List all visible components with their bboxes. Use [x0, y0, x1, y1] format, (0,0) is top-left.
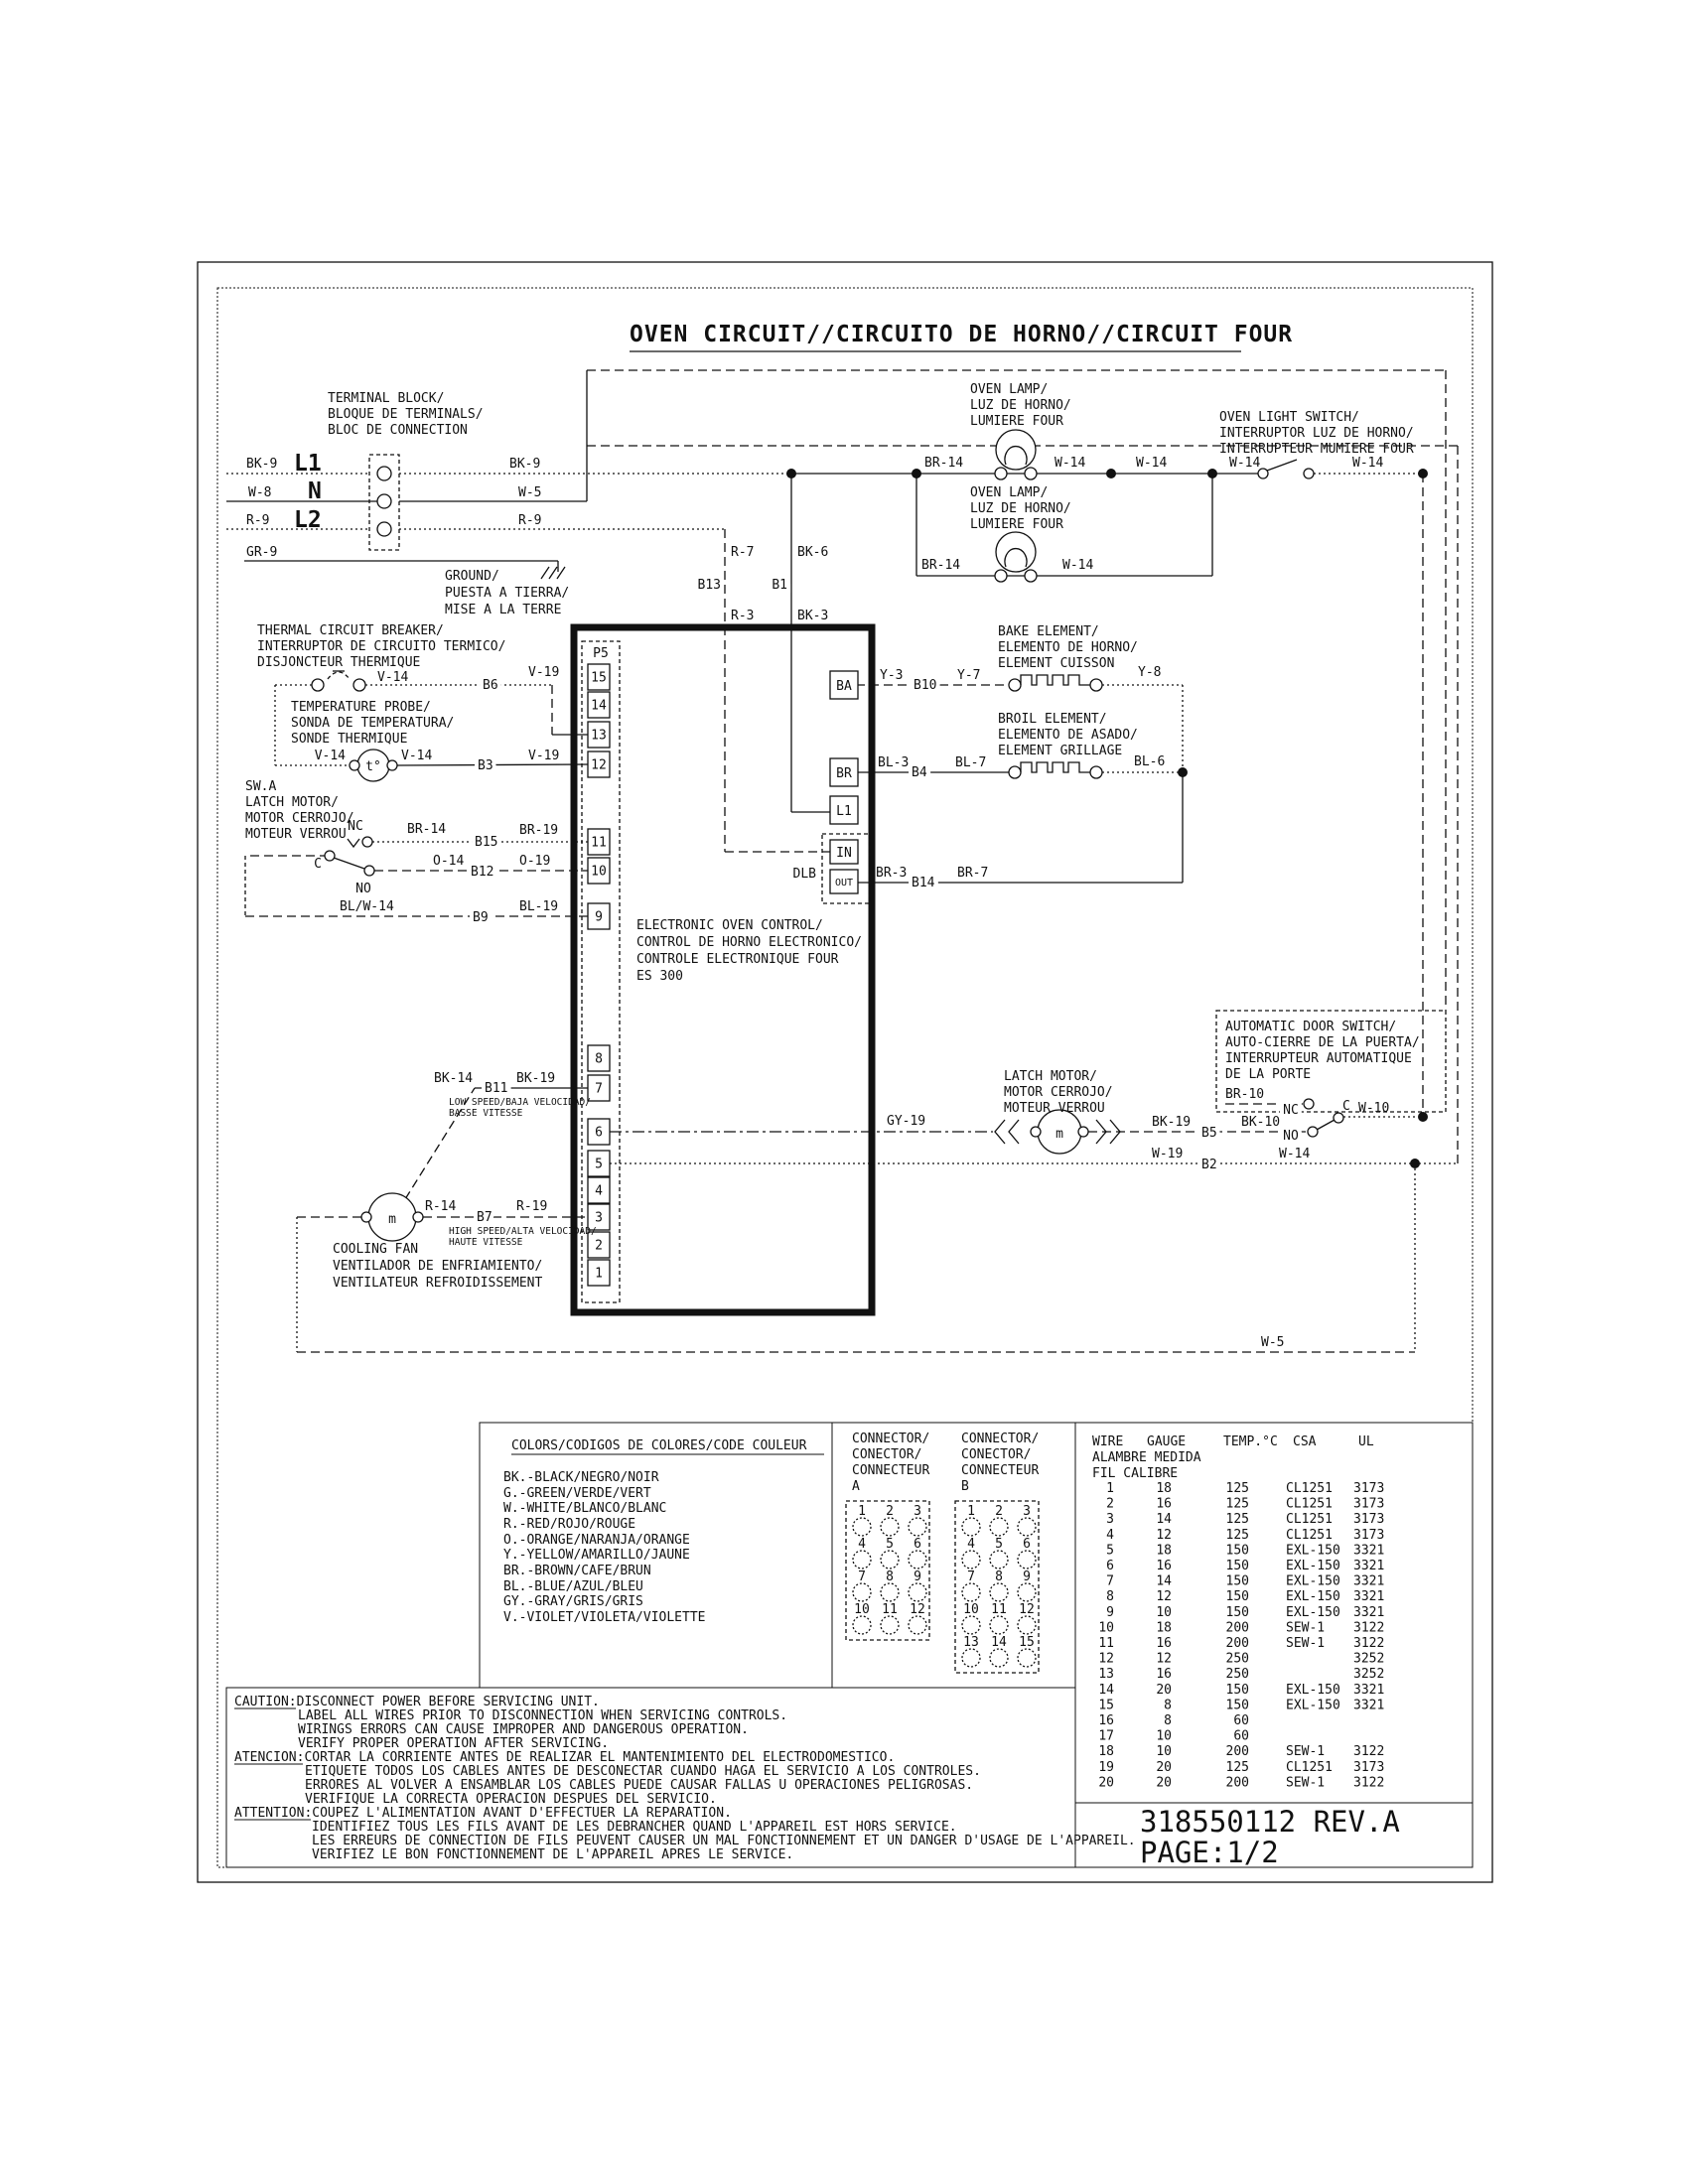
- svg-text:ES 300: ES 300: [636, 969, 683, 984]
- terminal-block-labels: TERMINAL BLOCK/ BLOQUE DE TERMINALS/ BLO…: [246, 391, 541, 560]
- svg-text:IDENTIFIEZ TOUS LES FILS AVANT: IDENTIFIEZ TOUS LES FILS AVANT DE LES DE…: [312, 1820, 957, 1835]
- svg-text:3122: 3122: [1353, 1775, 1384, 1790]
- svg-text:OVEN LAMP/: OVEN LAMP/: [970, 382, 1048, 397]
- svg-text:THERMAL CIRCUIT BREAKER/: THERMAL CIRCUIT BREAKER/: [257, 623, 444, 638]
- svg-text:B9: B9: [473, 910, 489, 925]
- svg-text:CONNECTOR/: CONNECTOR/: [961, 1432, 1039, 1446]
- svg-text:BL/W-14: BL/W-14: [340, 899, 394, 914]
- svg-text:W-10: W-10: [1358, 1101, 1389, 1116]
- svg-text:150: 150: [1226, 1605, 1249, 1620]
- svg-text:B13: B13: [698, 578, 721, 593]
- svg-text:BL-7: BL-7: [955, 755, 986, 770]
- svg-text:AUTO-CIERRE DE LA PUERTA/: AUTO-CIERRE DE LA PUERTA/: [1225, 1035, 1420, 1050]
- svg-text:OVEN LIGHT SWITCH/: OVEN LIGHT SWITCH/: [1219, 410, 1359, 425]
- svg-text:12: 12: [591, 758, 607, 773]
- svg-text:GY.-GRAY/GRIS/GRIS: GY.-GRAY/GRIS/GRIS: [503, 1594, 643, 1609]
- svg-text:5: 5: [886, 1537, 894, 1552]
- svg-text:LATCH MOTOR/: LATCH MOTOR/: [245, 795, 339, 810]
- svg-text:150: 150: [1226, 1683, 1249, 1698]
- svg-text:BK-19: BK-19: [1152, 1115, 1191, 1130]
- svg-text:10: 10: [1098, 1620, 1114, 1635]
- svg-text:R-14: R-14: [425, 1199, 456, 1214]
- svg-text:150: 150: [1226, 1698, 1249, 1712]
- svg-text:17: 17: [1098, 1729, 1114, 1744]
- svg-text:B15: B15: [475, 835, 497, 850]
- svg-text:CL1251: CL1251: [1286, 1512, 1333, 1527]
- svg-text:LATCH MOTOR/: LATCH MOTOR/: [1004, 1069, 1097, 1084]
- svg-text:O-19: O-19: [519, 854, 550, 869]
- svg-text:1: 1: [858, 1504, 866, 1519]
- control-relay-terminals: BA BR L1 IN OUT DLB: [793, 671, 870, 903]
- svg-text:MOTOR CERROJO/: MOTOR CERROJO/: [245, 811, 354, 826]
- caution-box: CAUTION:DISCONNECT POWER BEFORE SERVICIN…: [226, 1688, 1136, 1867]
- svg-text:BR-14: BR-14: [921, 558, 960, 573]
- svg-text:OVEN LAMP/: OVEN LAMP/: [970, 485, 1048, 500]
- door-switch-symbol: [1304, 1099, 1343, 1137]
- svg-text:3: 3: [1106, 1512, 1114, 1527]
- svg-text:6: 6: [914, 1537, 921, 1552]
- wire-gauge-table: WIRE GAUGE TEMP.°C CSA UL ALAMBRE MEDIDA…: [1092, 1434, 1384, 1790]
- svg-text:2: 2: [995, 1504, 1003, 1519]
- svg-text:BL-6: BL-6: [1134, 754, 1165, 769]
- svg-text:V-19: V-19: [528, 749, 559, 763]
- svg-text:125: 125: [1226, 1481, 1249, 1496]
- svg-text:m: m: [1055, 1127, 1063, 1142]
- thermal-breaker-symbol: [312, 671, 365, 691]
- svg-text:B1: B1: [772, 578, 787, 593]
- svg-text:V-14: V-14: [377, 670, 408, 685]
- svg-text:MOTEUR VERROU: MOTEUR VERROU: [1004, 1101, 1105, 1116]
- svg-text:VERIFY PROPER OPERATION AFTER: VERIFY PROPER OPERATION AFTER SERVICING.: [298, 1736, 609, 1751]
- svg-text:L1: L1: [836, 804, 852, 819]
- dlb-label: DLB: [793, 867, 817, 882]
- svg-text:LES ERREURS DE CONNECTION DE F: LES ERREURS DE CONNECTION DE FILS PEUVEN…: [312, 1834, 1136, 1848]
- svg-text:3122: 3122: [1353, 1636, 1384, 1651]
- svg-text:DE LA PORTE: DE LA PORTE: [1225, 1067, 1311, 1082]
- svg-text:1: 1: [967, 1504, 975, 1519]
- svg-text:BR-19: BR-19: [519, 823, 558, 838]
- svg-text:9: 9: [1106, 1605, 1114, 1620]
- svg-text:7: 7: [967, 1570, 975, 1584]
- svg-text:Y-7: Y-7: [957, 668, 980, 683]
- svg-text:BK-9: BK-9: [509, 457, 540, 472]
- svg-text:19: 19: [1098, 1760, 1114, 1775]
- svg-text:3252: 3252: [1353, 1667, 1384, 1682]
- svg-text:R-19: R-19: [516, 1199, 547, 1214]
- svg-text:8: 8: [1164, 1698, 1172, 1712]
- svg-text:WIRE: WIRE: [1092, 1434, 1123, 1449]
- svg-text:VERIFIEZ LE BON FONCTIONNEMENT: VERIFIEZ LE BON FONCTIONNEMENT DE L'APPA…: [312, 1847, 793, 1862]
- breaker-labels: THERMAL CIRCUIT BREAKER/ INTERRUPTOR DE …: [257, 623, 559, 693]
- svg-text:BAKE ELEMENT/: BAKE ELEMENT/: [998, 624, 1099, 639]
- svg-text:SW.A: SW.A: [245, 779, 276, 794]
- swa-labels: SW.A LATCH MOTOR/ MOTOR CERROJO/ MOTEUR …: [245, 779, 558, 925]
- svg-text:20: 20: [1098, 1775, 1114, 1790]
- svg-text:BLOQUE DE TERMINALS/: BLOQUE DE TERMINALS/: [328, 407, 484, 422]
- l1-terminal: L1: [294, 451, 322, 477]
- svg-text:3: 3: [914, 1504, 921, 1519]
- svg-text:10: 10: [854, 1602, 870, 1617]
- svg-text:V-19: V-19: [528, 665, 559, 680]
- svg-text:ATENCION:CORTAR LA CORRIENTE A: ATENCION:CORTAR LA CORRIENTE ANTES DE RE…: [234, 1750, 895, 1765]
- svg-text:TEMP.°C: TEMP.°C: [1223, 1434, 1278, 1449]
- svg-text:ELECTRONIC OVEN CONTROL/: ELECTRONIC OVEN CONTROL/: [636, 918, 823, 933]
- svg-text:NC: NC: [348, 819, 363, 834]
- fan-labels: COOLING FAN VENTILADOR DE ENFRIAMIENTO/ …: [333, 1071, 597, 1291]
- svg-text:HIGH SPEED/ALTA VELOCIDAD/: HIGH SPEED/ALTA VELOCIDAD/: [449, 1226, 597, 1237]
- svg-text:SEW-1: SEW-1: [1286, 1620, 1325, 1635]
- oven-light-switch-symbol: [1258, 469, 1314, 478]
- svg-text:CL1251: CL1251: [1286, 1528, 1333, 1543]
- svg-text:CONNECTEUR: CONNECTEUR: [961, 1463, 1039, 1478]
- svg-text:W-5: W-5: [518, 485, 541, 500]
- svg-text:60: 60: [1233, 1713, 1249, 1728]
- svg-text:V-14: V-14: [315, 749, 346, 763]
- svg-text:3321: 3321: [1353, 1698, 1384, 1712]
- svg-text:B6: B6: [483, 678, 498, 693]
- svg-text:W-14: W-14: [1055, 456, 1085, 471]
- svg-text:NO: NO: [1283, 1129, 1299, 1144]
- svg-text:BL.-BLUE/AZUL/BLEU: BL.-BLUE/AZUL/BLEU: [503, 1579, 643, 1594]
- svg-text:8: 8: [995, 1570, 1003, 1584]
- svg-text:GAUGE: GAUGE: [1147, 1434, 1186, 1449]
- svg-text:VERIFIQUE LA CORRECTA OPERACIO: VERIFIQUE LA CORRECTA OPERACION DESPUES …: [305, 1792, 717, 1807]
- svg-text:125: 125: [1226, 1497, 1249, 1512]
- svg-text:LUMIERE FOUR: LUMIERE FOUR: [970, 414, 1063, 429]
- svg-text:2: 2: [886, 1504, 894, 1519]
- svg-text:V-14: V-14: [401, 749, 432, 763]
- svg-text:SEW-1: SEW-1: [1286, 1775, 1325, 1790]
- svg-text:EXL-150: EXL-150: [1286, 1698, 1340, 1712]
- svg-text:EXL-150: EXL-150: [1286, 1543, 1340, 1558]
- svg-text:ELEMENT GRILLAGE: ELEMENT GRILLAGE: [998, 744, 1122, 758]
- svg-text:C: C: [314, 857, 322, 872]
- svg-text:11: 11: [591, 836, 607, 851]
- w5-bottom-label: W-5: [1261, 1335, 1284, 1350]
- svg-text:9: 9: [1023, 1570, 1031, 1584]
- svg-text:W-14: W-14: [1062, 558, 1093, 573]
- svg-text:MISE A LA TERRE: MISE A LA TERRE: [445, 603, 561, 617]
- svg-text:125: 125: [1226, 1512, 1249, 1527]
- svg-text:Y-8: Y-8: [1138, 665, 1161, 680]
- svg-text:150: 150: [1226, 1543, 1249, 1558]
- svg-text:SONDA DE TEMPERATURA/: SONDA DE TEMPERATURA/: [291, 716, 454, 731]
- svg-text:14: 14: [1156, 1512, 1172, 1527]
- svg-text:HAUTE VITESSE: HAUTE VITESSE: [449, 1237, 523, 1248]
- svg-text:12: 12: [1156, 1589, 1172, 1604]
- svg-text:20: 20: [1156, 1760, 1172, 1775]
- svg-text:BK-19: BK-19: [516, 1071, 555, 1086]
- svg-text:IN: IN: [836, 846, 852, 861]
- svg-text:VENTILATEUR REFROIDISSEMENT: VENTILATEUR REFROIDISSEMENT: [333, 1276, 542, 1291]
- svg-text:LUMIERE FOUR: LUMIERE FOUR: [970, 517, 1063, 532]
- svg-text:18: 18: [1156, 1543, 1172, 1558]
- svg-text:10: 10: [1156, 1605, 1172, 1620]
- svg-text:12: 12: [910, 1602, 925, 1617]
- svg-text:ELEMENTO DE HORNO/: ELEMENTO DE HORNO/: [998, 640, 1138, 655]
- svg-text:8: 8: [595, 1052, 603, 1067]
- svg-text:SEW-1: SEW-1: [1286, 1744, 1325, 1759]
- svg-text:10: 10: [1156, 1744, 1172, 1759]
- svg-text:12: 12: [1156, 1652, 1172, 1667]
- wire-gauge-rows: 118125CL12513173216125CL12513173314125CL…: [1098, 1481, 1384, 1790]
- svg-text:MOTOR CERROJO/: MOTOR CERROJO/: [1004, 1085, 1113, 1100]
- svg-text:B: B: [961, 1479, 969, 1494]
- svg-text:B3: B3: [478, 758, 493, 773]
- color-legend-title: COLORS/CODIGOS DE COLORES/CODE COULEUR: [511, 1438, 807, 1453]
- svg-text:3173: 3173: [1353, 1528, 1384, 1543]
- svg-text:NC: NC: [1283, 1103, 1299, 1118]
- svg-text:20: 20: [1156, 1775, 1172, 1790]
- svg-text:12: 12: [1019, 1602, 1035, 1617]
- svg-text:3173: 3173: [1353, 1760, 1384, 1775]
- svg-text:BA: BA: [836, 679, 852, 694]
- svg-text:W-14: W-14: [1279, 1147, 1310, 1161]
- svg-text:3321: 3321: [1353, 1683, 1384, 1698]
- svg-text:14: 14: [591, 699, 607, 714]
- svg-text:B7: B7: [477, 1210, 492, 1225]
- svg-text:60: 60: [1233, 1729, 1249, 1744]
- svg-text:INTERRUPTOR DE CIRCUITO TERMIC: INTERRUPTOR DE CIRCUITO TERMICO/: [257, 639, 505, 654]
- svg-text:PUESTA A TIERRA/: PUESTA A TIERRA/: [445, 586, 569, 601]
- svg-text:CSA: CSA: [1293, 1434, 1317, 1449]
- svg-text:CONNECTOR/: CONNECTOR/: [852, 1432, 929, 1446]
- svg-text:CONTROL DE HORNO ELECTRONICO/: CONTROL DE HORNO ELECTRONICO/: [636, 935, 862, 950]
- n-terminal: N: [308, 478, 322, 504]
- svg-text:200: 200: [1226, 1775, 1249, 1790]
- svg-text:ELEMENTO DE ASADO/: ELEMENTO DE ASADO/: [998, 728, 1138, 743]
- svg-text:R-7: R-7: [731, 545, 754, 560]
- svg-text:COOLING FAN: COOLING FAN: [333, 1242, 418, 1257]
- svg-text:CONECTOR/: CONECTOR/: [852, 1447, 921, 1462]
- svg-text:3173: 3173: [1353, 1512, 1384, 1527]
- l2-terminal: L2: [294, 507, 322, 533]
- svg-text:A: A: [852, 1479, 860, 1494]
- svg-text:150: 150: [1226, 1574, 1249, 1589]
- svg-text:CAUTION:DISCONNECT POWER BEFOR: CAUTION:DISCONNECT POWER BEFORE SERVICIN…: [234, 1695, 600, 1709]
- svg-text:BL-3: BL-3: [878, 755, 909, 770]
- p5-label: P5: [593, 646, 609, 661]
- oven-lamp-2-icon: [995, 532, 1037, 582]
- svg-text:3321: 3321: [1353, 1574, 1384, 1589]
- svg-text:BR-3: BR-3: [876, 866, 907, 881]
- svg-text:150: 150: [1226, 1589, 1249, 1604]
- svg-text:150: 150: [1226, 1559, 1249, 1573]
- svg-text:6: 6: [595, 1126, 603, 1141]
- svg-text:4: 4: [595, 1184, 603, 1199]
- svg-text:7: 7: [595, 1082, 603, 1097]
- svg-text:10: 10: [963, 1602, 979, 1617]
- svg-text:13: 13: [963, 1635, 979, 1650]
- svg-text:1: 1: [595, 1267, 603, 1282]
- svg-text:AUTOMATIC DOOR SWITCH/: AUTOMATIC DOOR SWITCH/: [1225, 1020, 1396, 1034]
- svg-text:B4: B4: [912, 765, 927, 780]
- svg-text:BR-14: BR-14: [407, 822, 446, 837]
- svg-text:R-3: R-3: [731, 609, 754, 623]
- svg-text:BASSE VITESSE: BASSE VITESSE: [449, 1108, 523, 1119]
- svg-text:NO: NO: [355, 882, 371, 896]
- svg-text:5: 5: [595, 1158, 603, 1172]
- svg-text:5: 5: [1106, 1543, 1114, 1558]
- broil-element-coil: [1009, 762, 1102, 778]
- svg-text:15: 15: [591, 671, 607, 686]
- svg-text:B12: B12: [471, 865, 493, 880]
- svg-text:BR-14: BR-14: [924, 456, 963, 471]
- svg-text:GY-19: GY-19: [887, 1114, 925, 1129]
- svg-text:9: 9: [914, 1570, 921, 1584]
- svg-text:15: 15: [1098, 1698, 1114, 1712]
- svg-text:16: 16: [1156, 1497, 1172, 1512]
- svg-text:14: 14: [1098, 1683, 1114, 1698]
- svg-text:4: 4: [967, 1537, 975, 1552]
- svg-text:3321: 3321: [1353, 1559, 1384, 1573]
- svg-text:C: C: [1342, 1099, 1350, 1114]
- svg-text:B10: B10: [914, 678, 936, 693]
- svg-text:W-14: W-14: [1229, 456, 1260, 471]
- svg-text:4: 4: [858, 1537, 866, 1552]
- probe-labels: TEMPERATURE PROBE/ SONDA DE TEMPERATURA/…: [291, 700, 559, 773]
- svg-text:4: 4: [1106, 1528, 1114, 1543]
- svg-text:SEW-1: SEW-1: [1286, 1636, 1325, 1651]
- swa-switch-symbol: [325, 837, 374, 876]
- svg-text:12: 12: [1098, 1652, 1114, 1667]
- svg-text:LUZ DE HORNO/: LUZ DE HORNO/: [970, 398, 1071, 413]
- svg-text:EXL-150: EXL-150: [1286, 1683, 1340, 1698]
- svg-text:GR-9: GR-9: [246, 545, 277, 560]
- svg-text:BK-3: BK-3: [797, 609, 828, 623]
- svg-text:2: 2: [595, 1239, 603, 1254]
- svg-text:BK-14: BK-14: [434, 1071, 473, 1086]
- svg-text:18: 18: [1156, 1481, 1172, 1496]
- svg-text:1: 1: [1106, 1481, 1114, 1496]
- svg-text:INTERRUPTEUR MUMIERE FOUR: INTERRUPTEUR MUMIERE FOUR: [1219, 442, 1414, 457]
- svg-text:O.-ORANGE/NARANJA/ORANGE: O.-ORANGE/NARANJA/ORANGE: [503, 1533, 690, 1548]
- svg-text:8: 8: [1106, 1589, 1114, 1604]
- svg-text:ERRORES AL VOLVER A ENSAMBLAR: ERRORES AL VOLVER A ENSAMBLAR LOS CABLES…: [305, 1778, 973, 1793]
- svg-text:BK-6: BK-6: [797, 545, 828, 560]
- svg-text:OUT: OUT: [835, 878, 853, 888]
- cooling-fan-motor-icon: m: [361, 1193, 423, 1241]
- oven-lamp-1-icon: [995, 430, 1037, 479]
- part-number: 318550112 REV.A: [1140, 1805, 1400, 1839]
- svg-text:10: 10: [591, 865, 607, 880]
- svg-text:V.-VIOLET/VIOLETA/VIOLETTE: V.-VIOLET/VIOLETA/VIOLETTE: [503, 1610, 706, 1625]
- svg-text:6: 6: [1023, 1537, 1031, 1552]
- color-code-legend: COLORS/CODIGOS DE COLORES/CODE COULEUR B…: [503, 1438, 824, 1625]
- svg-text:INTERRUPTEUR AUTOMATIQUE: INTERRUPTEUR AUTOMATIQUE: [1225, 1051, 1412, 1066]
- connector-a: CONNECTOR/ CONECTOR/ CONNECTEUR A 123456…: [846, 1432, 929, 1640]
- svg-text:DISJONCTEUR THERMIQUE: DISJONCTEUR THERMIQUE: [257, 655, 420, 670]
- svg-text:BL-19: BL-19: [519, 899, 558, 914]
- svg-text:W-14: W-14: [1136, 456, 1167, 471]
- svg-text:GROUND/: GROUND/: [445, 569, 499, 584]
- svg-text:EXL-150: EXL-150: [1286, 1559, 1340, 1573]
- svg-text:BK-9: BK-9: [246, 457, 277, 472]
- svg-text:9: 9: [595, 910, 603, 925]
- svg-text:3: 3: [1023, 1504, 1031, 1519]
- connector-b-pins: 123456789101112131415: [962, 1504, 1036, 1667]
- svg-text:11: 11: [1098, 1636, 1114, 1651]
- svg-text:BROIL ELEMENT/: BROIL ELEMENT/: [998, 712, 1107, 727]
- svg-text:10: 10: [1156, 1729, 1172, 1744]
- svg-text:250: 250: [1226, 1652, 1249, 1667]
- svg-text:5: 5: [995, 1537, 1003, 1552]
- svg-text:t°: t°: [365, 759, 381, 774]
- svg-text:250: 250: [1226, 1667, 1249, 1682]
- svg-text:BR-7: BR-7: [957, 866, 988, 881]
- svg-text:BR.-BROWN/CAFE/BRUN: BR.-BROWN/CAFE/BRUN: [503, 1564, 651, 1578]
- svg-text:18: 18: [1156, 1620, 1172, 1635]
- svg-text:16: 16: [1156, 1667, 1172, 1682]
- connector-b: CONNECTOR/ CONECTOR/ CONNECTEUR B 123456…: [955, 1432, 1039, 1673]
- svg-text:R.-RED/ROJO/ROUGE: R.-RED/ROJO/ROUGE: [503, 1517, 635, 1532]
- svg-text:FIL CALIBRE: FIL CALIBRE: [1092, 1466, 1178, 1481]
- svg-text:UL: UL: [1358, 1434, 1374, 1449]
- oven-circuit-schematic: OVEN CIRCUIT//CIRCUITO DE HORNO//CIRCUIT…: [0, 0, 1688, 2184]
- svg-text:12: 12: [1156, 1528, 1172, 1543]
- svg-text:14: 14: [991, 1635, 1007, 1650]
- svg-text:BR-10: BR-10: [1225, 1087, 1264, 1102]
- svg-text:CONNECTEUR: CONNECTEUR: [852, 1463, 929, 1478]
- svg-text:B11: B11: [485, 1081, 507, 1096]
- svg-text:TERMINAL BLOCK/: TERMINAL BLOCK/: [328, 391, 444, 406]
- svg-text:200: 200: [1226, 1620, 1249, 1635]
- svg-text:m: m: [388, 1212, 396, 1227]
- light-switch-labels: OVEN LIGHT SWITCH/ INTERRUPTOR LUZ DE HO…: [1219, 410, 1414, 471]
- svg-text:7: 7: [858, 1570, 866, 1584]
- svg-text:W-14: W-14: [1352, 456, 1383, 471]
- wiring-diagram-page: OVEN CIRCUIT//CIRCUITO DE HORNO//CIRCUIT…: [0, 0, 1688, 2184]
- electronic-oven-control-box: P5 151413121110987654321 BA BR L1 IN OUT…: [574, 627, 872, 1312]
- svg-text:ETIQUETE TODOS LOS CABLES ANTE: ETIQUETE TODOS LOS CABLES ANTES DE DESCO…: [305, 1764, 981, 1779]
- svg-text:13: 13: [1098, 1667, 1114, 1682]
- svg-text:15: 15: [1019, 1635, 1035, 1650]
- connector-a-pins: 123456789101112: [853, 1504, 926, 1634]
- page-indicator: PAGE:1/2: [1140, 1836, 1279, 1869]
- svg-text:BLOC DE CONNECTION: BLOC DE CONNECTION: [328, 423, 468, 438]
- svg-text:3252: 3252: [1353, 1652, 1384, 1667]
- svg-text:LOW SPEED/BAJA VELOCIDAD/: LOW SPEED/BAJA VELOCIDAD/: [449, 1097, 591, 1108]
- svg-text:BR: BR: [836, 766, 852, 781]
- svg-text:CL1251: CL1251: [1286, 1760, 1333, 1775]
- svg-text:B2: B2: [1201, 1158, 1217, 1172]
- svg-text:20: 20: [1156, 1683, 1172, 1698]
- svg-text:16: 16: [1098, 1713, 1114, 1728]
- svg-text:CL1251: CL1251: [1286, 1497, 1333, 1512]
- svg-text:LABEL ALL WIRES PRIOR TO DISCO: LABEL ALL WIRES PRIOR TO DISCONNECTION W…: [298, 1708, 787, 1723]
- svg-text:14: 14: [1156, 1574, 1172, 1589]
- svg-text:3321: 3321: [1353, 1605, 1384, 1620]
- svg-text:ALAMBRE MEDIDA: ALAMBRE MEDIDA: [1092, 1450, 1201, 1465]
- svg-text:16: 16: [1156, 1559, 1172, 1573]
- svg-text:B14: B14: [912, 876, 935, 890]
- bake-element-coil: [1009, 675, 1102, 691]
- svg-text:Y-3: Y-3: [880, 668, 903, 683]
- svg-text:R-9: R-9: [518, 513, 541, 528]
- svg-text:3321: 3321: [1353, 1589, 1384, 1604]
- svg-text:WIRINGS ERRORS CAN CAUSE IMPRO: WIRINGS ERRORS CAN CAUSE IMPROPER AND DA…: [298, 1722, 749, 1737]
- svg-text:125: 125: [1226, 1760, 1249, 1775]
- svg-text:CONTROLE ELECTRONIQUE FOUR: CONTROLE ELECTRONIQUE FOUR: [636, 952, 839, 967]
- svg-text:11: 11: [882, 1602, 898, 1617]
- temperature-probe-symbol: t°: [350, 750, 397, 781]
- svg-text:3122: 3122: [1353, 1620, 1384, 1635]
- svg-text:8: 8: [886, 1570, 894, 1584]
- svg-text:3: 3: [595, 1211, 603, 1226]
- svg-text:BK.-BLACK/NEGRO/NOIR: BK.-BLACK/NEGRO/NOIR: [503, 1470, 659, 1485]
- p5-pins: 151413121110987654321: [588, 664, 610, 1286]
- svg-text:SONDE THERMIQUE: SONDE THERMIQUE: [291, 732, 407, 747]
